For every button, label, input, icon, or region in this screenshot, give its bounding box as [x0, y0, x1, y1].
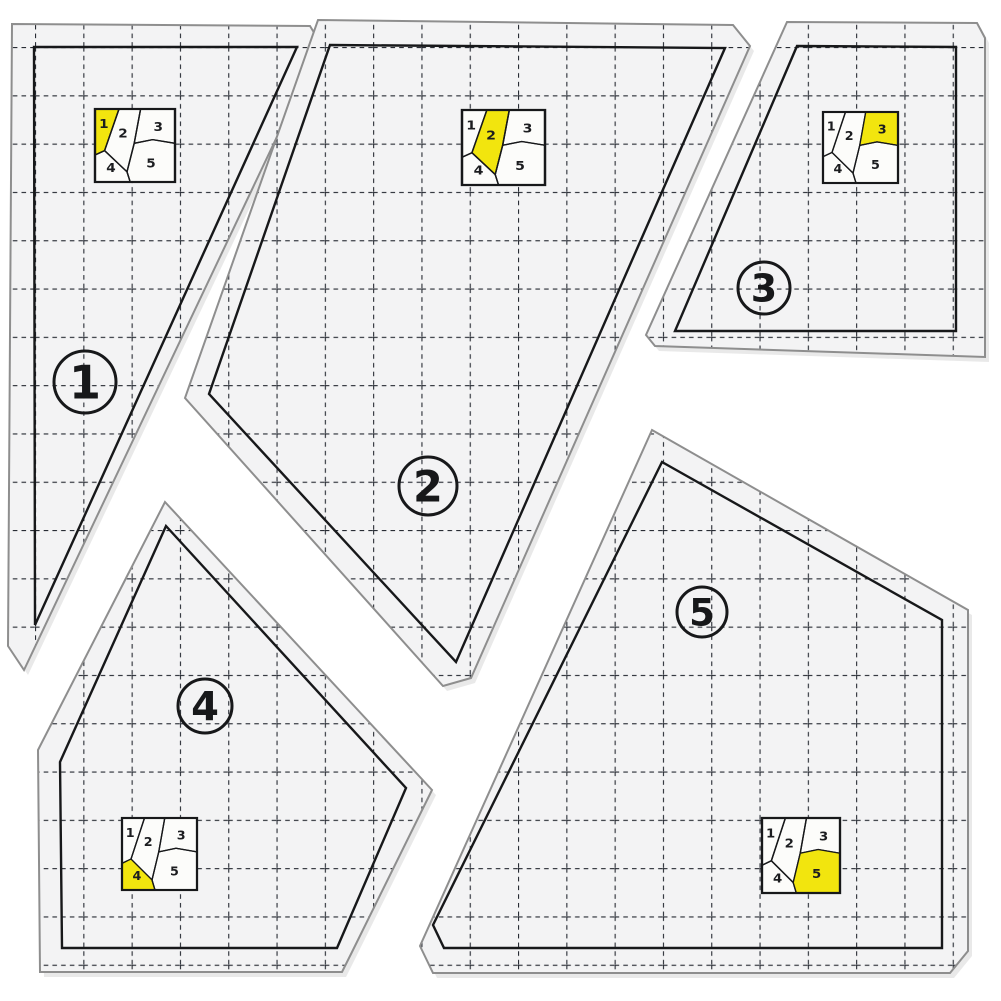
inset-region-number: 1 — [126, 825, 135, 840]
inset-region-number: 5 — [812, 867, 821, 882]
inset-region-number: 5 — [515, 160, 525, 174]
layout-inset-diagram: 12345 — [823, 112, 898, 183]
layout-inset-diagram: 12345 — [95, 109, 175, 182]
product-photo-stage: 112345212345312345412345512345 — [0, 0, 1001, 1001]
inset-region-number: 4 — [474, 164, 484, 178]
inset-region-number: 4 — [106, 161, 115, 175]
inset-region-number: 3 — [878, 122, 887, 137]
layout-inset-diagram: 12345 — [122, 818, 197, 890]
inset-region-number: 5 — [871, 157, 880, 172]
piece-number: 2 — [413, 462, 443, 512]
layout-inset-diagram: 12345 — [762, 818, 840, 893]
quilting-template-set-image: 112345212345312345412345512345 — [0, 0, 1001, 1001]
inset-region-number: 2 — [845, 128, 854, 143]
inset-region-number: 5 — [146, 157, 155, 171]
inset-region-number: 1 — [827, 119, 836, 134]
inset-region-number: 4 — [834, 161, 843, 176]
inset-region-number: 2 — [118, 127, 127, 141]
piece-number: 3 — [751, 267, 777, 311]
inset-region-number: 4 — [773, 872, 782, 887]
layout-inset-diagram: 12345 — [462, 110, 545, 185]
piece-number: 1 — [69, 356, 101, 410]
inset-region-number: 2 — [144, 834, 153, 849]
inset-region-number: 1 — [466, 119, 476, 133]
inset-region-number: 3 — [819, 830, 828, 845]
inset-region-number: 3 — [523, 122, 533, 136]
inset-region-number: 1 — [766, 827, 775, 842]
piece-number: 4 — [191, 684, 219, 730]
inset-region-number: 3 — [153, 121, 162, 135]
inset-region-number: 5 — [170, 864, 179, 879]
piece-number: 5 — [689, 591, 715, 634]
inset-region-number: 1 — [99, 118, 108, 132]
inset-region-number: 2 — [486, 129, 496, 143]
inset-region-number: 2 — [785, 837, 794, 852]
inset-region-number: 4 — [133, 868, 142, 883]
inset-region-number: 3 — [177, 828, 186, 843]
